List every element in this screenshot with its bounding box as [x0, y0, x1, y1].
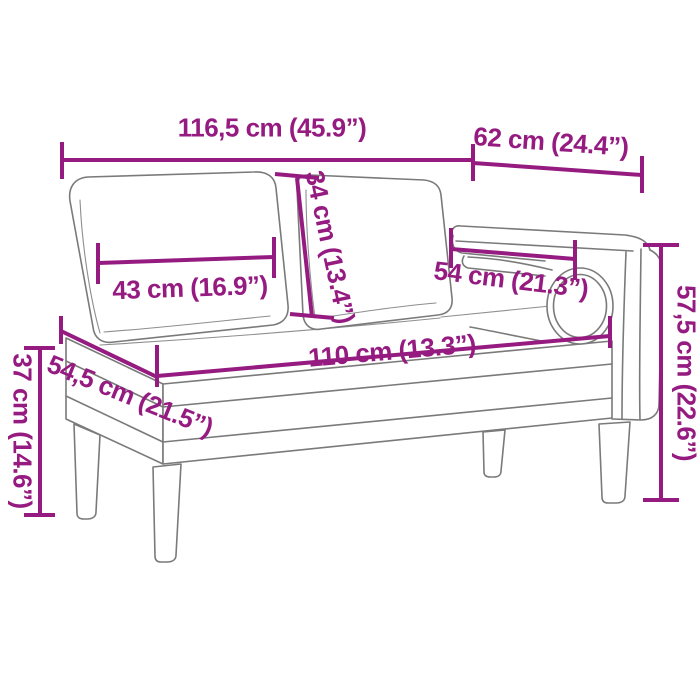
dim-label-overall-height: 57,5 cm (22.6”)	[671, 285, 700, 461]
side-panel-outline	[612, 250, 662, 420]
seat-deck-edge	[441, 305, 560, 317]
front-right-leg	[483, 430, 505, 477]
dimension-diagram: 116,5 cm (45.9”) 62 cm (24.4”) 43 cm (16…	[0, 0, 700, 700]
rear-left-leg	[153, 464, 181, 562]
dim-label-seat-height: 37 cm (14.6”)	[7, 353, 38, 508]
armrest-rail-line	[456, 241, 633, 251]
side-panel-seam	[640, 249, 641, 419]
dim-label-overall-width: 116,5 cm (45.9”)	[178, 113, 367, 144]
dim-label-back-cushion-width: 43 cm (16.9”)	[112, 270, 268, 306]
bolster-bottom-line	[470, 327, 547, 342]
side-panel-seam	[622, 252, 626, 419]
rear-right-leg	[599, 422, 630, 503]
front-left-leg	[74, 424, 100, 519]
